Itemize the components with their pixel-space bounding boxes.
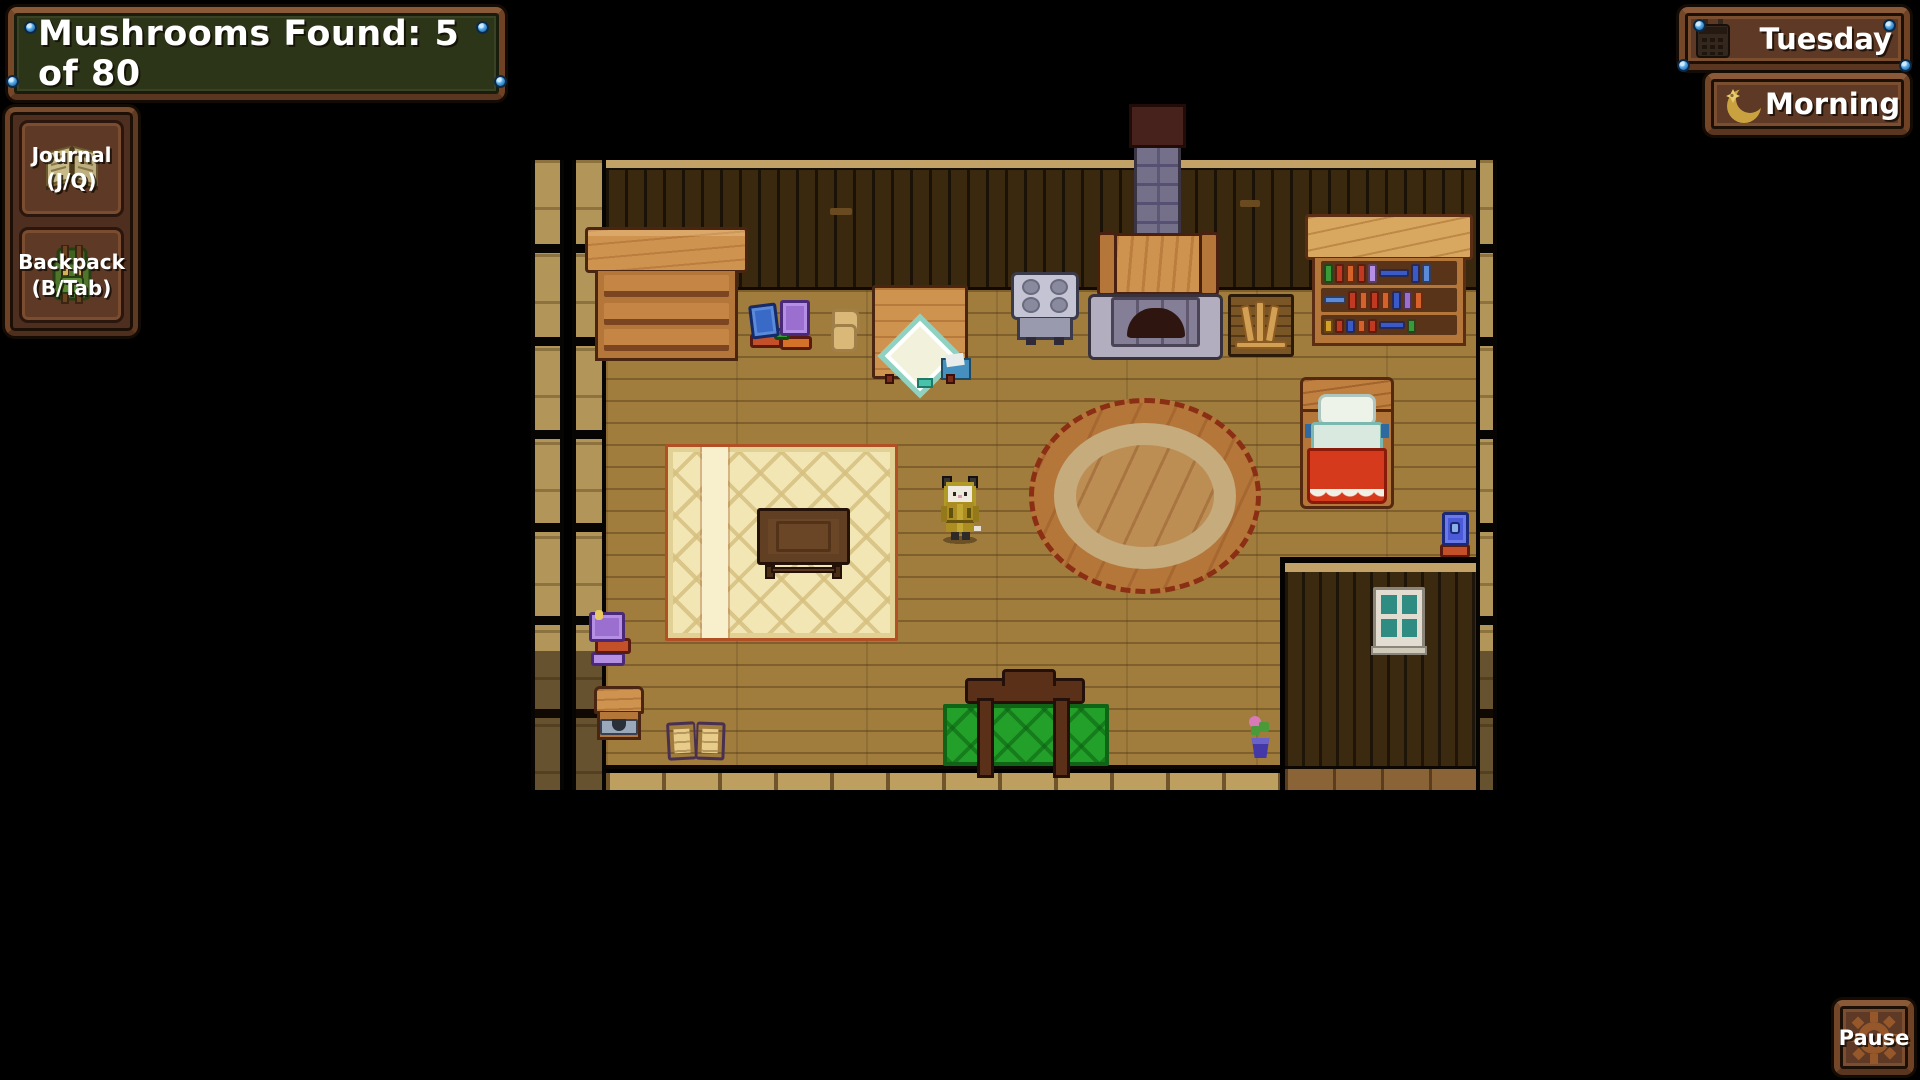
dresser-top: [585, 227, 748, 273]
napkin: [917, 378, 933, 388]
bed: [1300, 377, 1394, 509]
flower-leaf: [1259, 722, 1269, 732]
stacked-purple-books: [589, 612, 633, 670]
burner: [1050, 297, 1068, 313]
open-book: [667, 722, 725, 760]
journal-button-hotkey: (J/Q): [46, 168, 96, 194]
flower-leaf: [1251, 726, 1260, 735]
bookshelf: [1305, 214, 1473, 346]
day-panel: Tuesday: [1679, 7, 1910, 70]
pin-gem-icon: [494, 75, 507, 88]
stove-top: [1011, 272, 1079, 320]
fireplace-opening: [1127, 308, 1185, 338]
pause-button[interactable]: Pause: [1834, 1000, 1914, 1075]
wall-plank-mark: [830, 208, 852, 215]
dresser: [585, 227, 748, 361]
desk-legs: [757, 565, 850, 580]
table-leg: [946, 374, 955, 384]
easel-leg: [977, 698, 994, 778]
wall-top-trim: [606, 160, 1476, 170]
pause-button-label: Pause: [1839, 1026, 1910, 1050]
paper-scrap: [832, 309, 860, 333]
chest-body: [597, 712, 641, 740]
book-page: [666, 721, 697, 760]
chimney-cap: [1129, 104, 1186, 148]
fireplace-mantel: [1098, 233, 1218, 295]
mushroom-counter-panel: Mushrooms Found: 5 of 80: [8, 7, 505, 100]
side-table: [872, 285, 968, 379]
game-screen: Mushrooms Found: 5 of 80 Journal (J/Q): [0, 0, 1920, 1080]
fireplace-hearth: [1088, 294, 1223, 360]
window-glass: [1381, 595, 1417, 637]
shelf-row: [1321, 288, 1457, 312]
blanket-hem: [1310, 489, 1384, 501]
journal-button-label: Journal: [32, 142, 112, 168]
backpack-button[interactable]: Backpack (B/Tab): [19, 227, 124, 324]
backpack-button-label: Backpack: [18, 249, 125, 275]
drawer: [604, 329, 729, 351]
exterior-log-wall-right: [1476, 160, 1497, 790]
annex-baseboard: [1285, 766, 1476, 790]
round-braided-rug: [1029, 398, 1261, 594]
pin-gem-icon: [24, 21, 37, 34]
bed-blanket: [1307, 448, 1387, 504]
book-stack: [1440, 512, 1472, 560]
bookshelf-body: [1312, 258, 1466, 346]
shelf-row: [1321, 315, 1457, 335]
firewood-rack: [1228, 294, 1294, 357]
journal-button[interactable]: Journal (J/Q): [19, 120, 124, 217]
table-leg: [885, 374, 894, 384]
burner: [1022, 297, 1040, 313]
potted-flower: [1247, 714, 1274, 758]
window-sill: [1371, 646, 1427, 655]
player-character: [938, 476, 982, 544]
crescent-moon-icon: [1719, 81, 1765, 127]
pin-gem-icon: [6, 75, 19, 88]
burner: [1022, 279, 1040, 295]
flower-pot: [1250, 738, 1271, 758]
backpack-button-hotkey: (B/Tab): [32, 275, 112, 301]
book-pile: [748, 300, 818, 364]
stove: [1011, 272, 1079, 348]
annex-trim: [1285, 563, 1476, 572]
drawer: [604, 303, 729, 325]
time-panel: Morning: [1705, 73, 1910, 135]
rug-fold: [702, 447, 728, 638]
dresser-body: [595, 271, 738, 361]
drawer: [604, 275, 729, 297]
stove-body: [1017, 318, 1073, 340]
writing-desk: [757, 508, 850, 580]
rug-center: [1076, 445, 1214, 547]
game-scene[interactable]: [0, 0, 1920, 1080]
chest-metal-band: [600, 719, 638, 735]
exterior-log-wall-left-a: [531, 160, 564, 790]
mushroom-counter-label: Mushrooms Found: 5 of 80: [38, 14, 499, 94]
window: [1373, 587, 1425, 655]
chest-lid: [594, 686, 644, 714]
fireplace-stone: [1111, 297, 1200, 347]
easel-leg: [1053, 698, 1070, 778]
hud-button-group: Journal (J/Q) Backpack (B/Tab): [5, 107, 138, 336]
annex-room: [1280, 557, 1476, 790]
burner: [1050, 279, 1068, 295]
desk-top: [757, 508, 850, 565]
pin-gem-icon: [1677, 59, 1690, 72]
bookshelf-top: [1305, 214, 1473, 260]
wall-plank-mark: [1240, 200, 1260, 207]
pin-gem-icon: [1899, 59, 1912, 72]
pin-gem-icon: [1693, 19, 1706, 32]
storage-chest: [594, 686, 644, 742]
pin-gem-icon: [476, 21, 489, 34]
book-page: [695, 722, 725, 761]
time-label: Morning: [1765, 87, 1912, 121]
easel: [965, 662, 1085, 794]
day-label: Tuesday: [1733, 22, 1904, 56]
shelf-row: [1321, 261, 1457, 285]
pin-gem-icon: [1883, 19, 1896, 32]
